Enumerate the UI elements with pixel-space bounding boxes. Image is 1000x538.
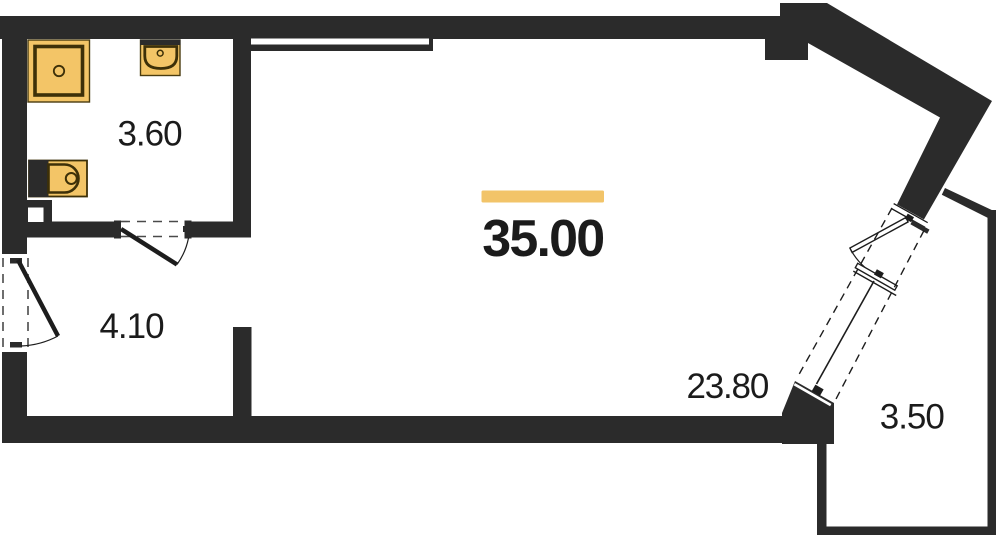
svg-text:3.60: 3.60 [117, 115, 182, 154]
svg-text:23.80: 23.80 [687, 367, 769, 406]
svg-text:35.00: 35.00 [482, 210, 603, 268]
svg-text:3.50: 3.50 [880, 398, 945, 437]
svg-text:4.10: 4.10 [99, 307, 164, 346]
